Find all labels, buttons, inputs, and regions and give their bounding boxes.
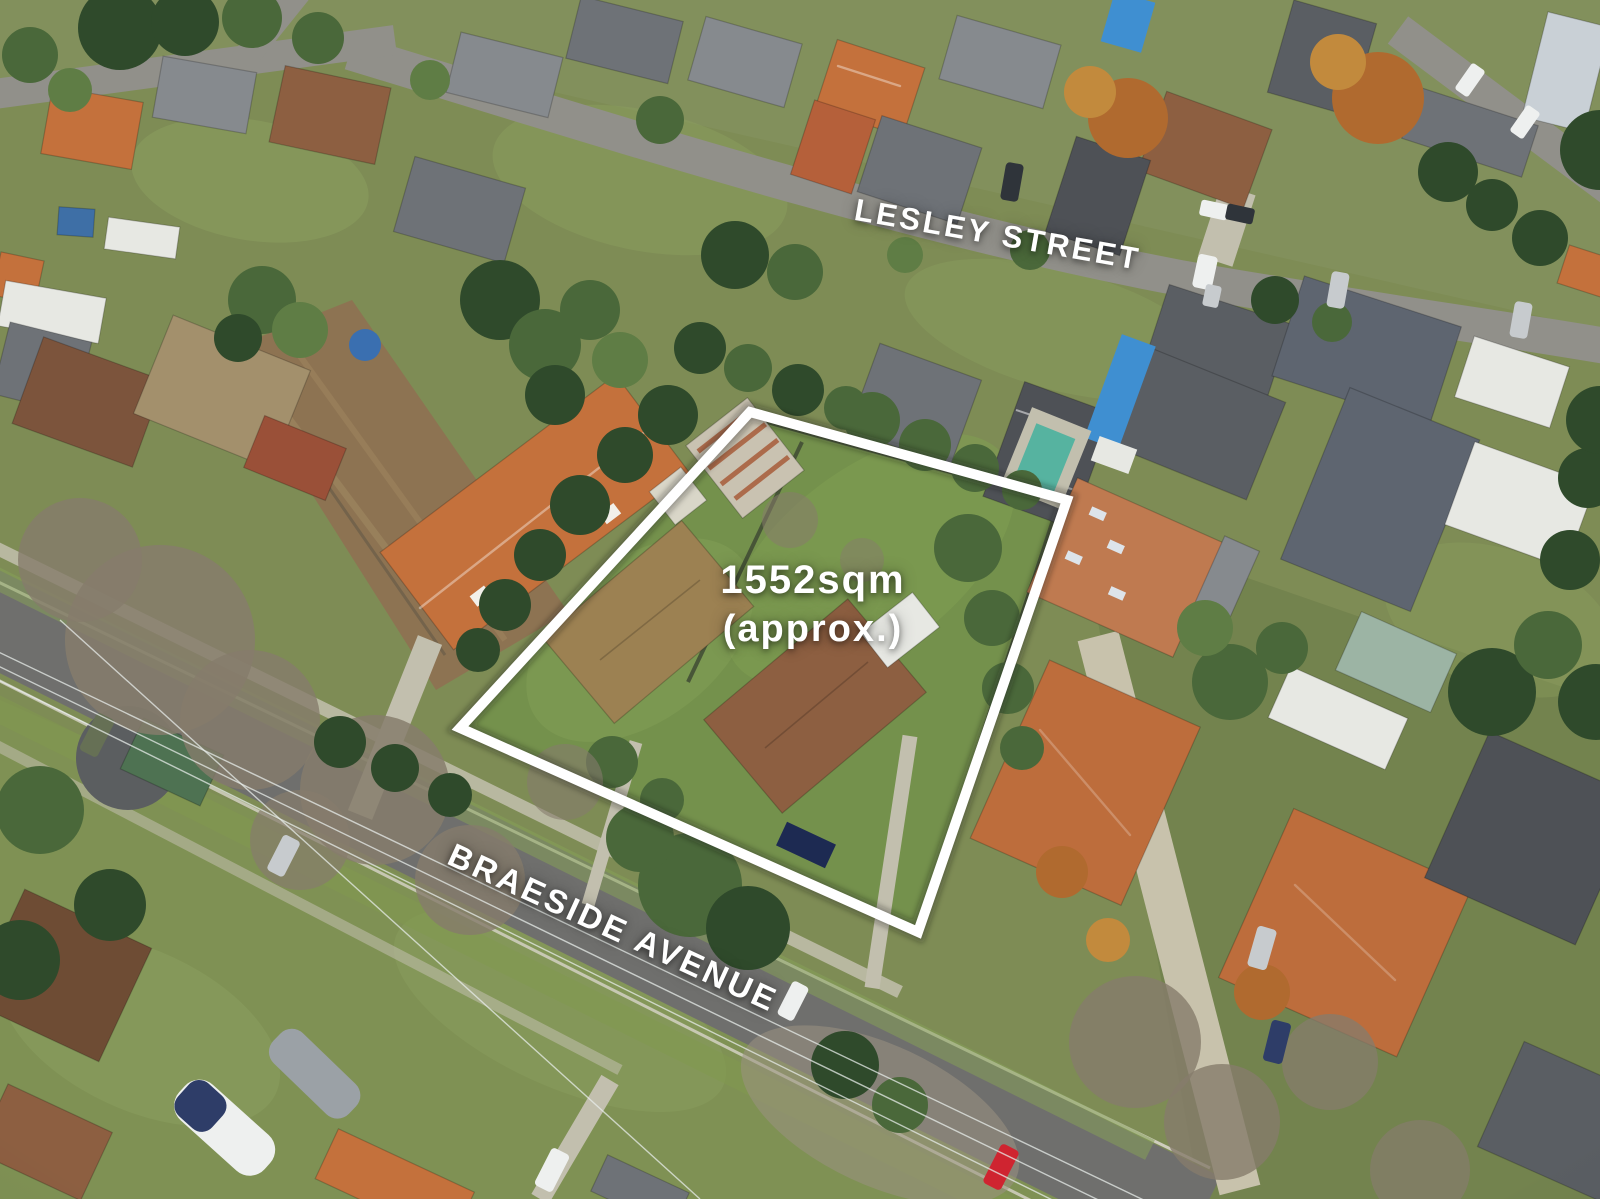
area-size-text: 1552sqm (637, 559, 989, 601)
area-label: 1552sqm (approx.) (637, 559, 989, 650)
blue-shed (57, 207, 95, 237)
area-approx-text: (approx.) (637, 610, 989, 650)
trampoline (349, 329, 381, 361)
aerial-photo: LESLEY STREET 1552sqm (approx.) BRAESIDE… (0, 0, 1600, 1199)
